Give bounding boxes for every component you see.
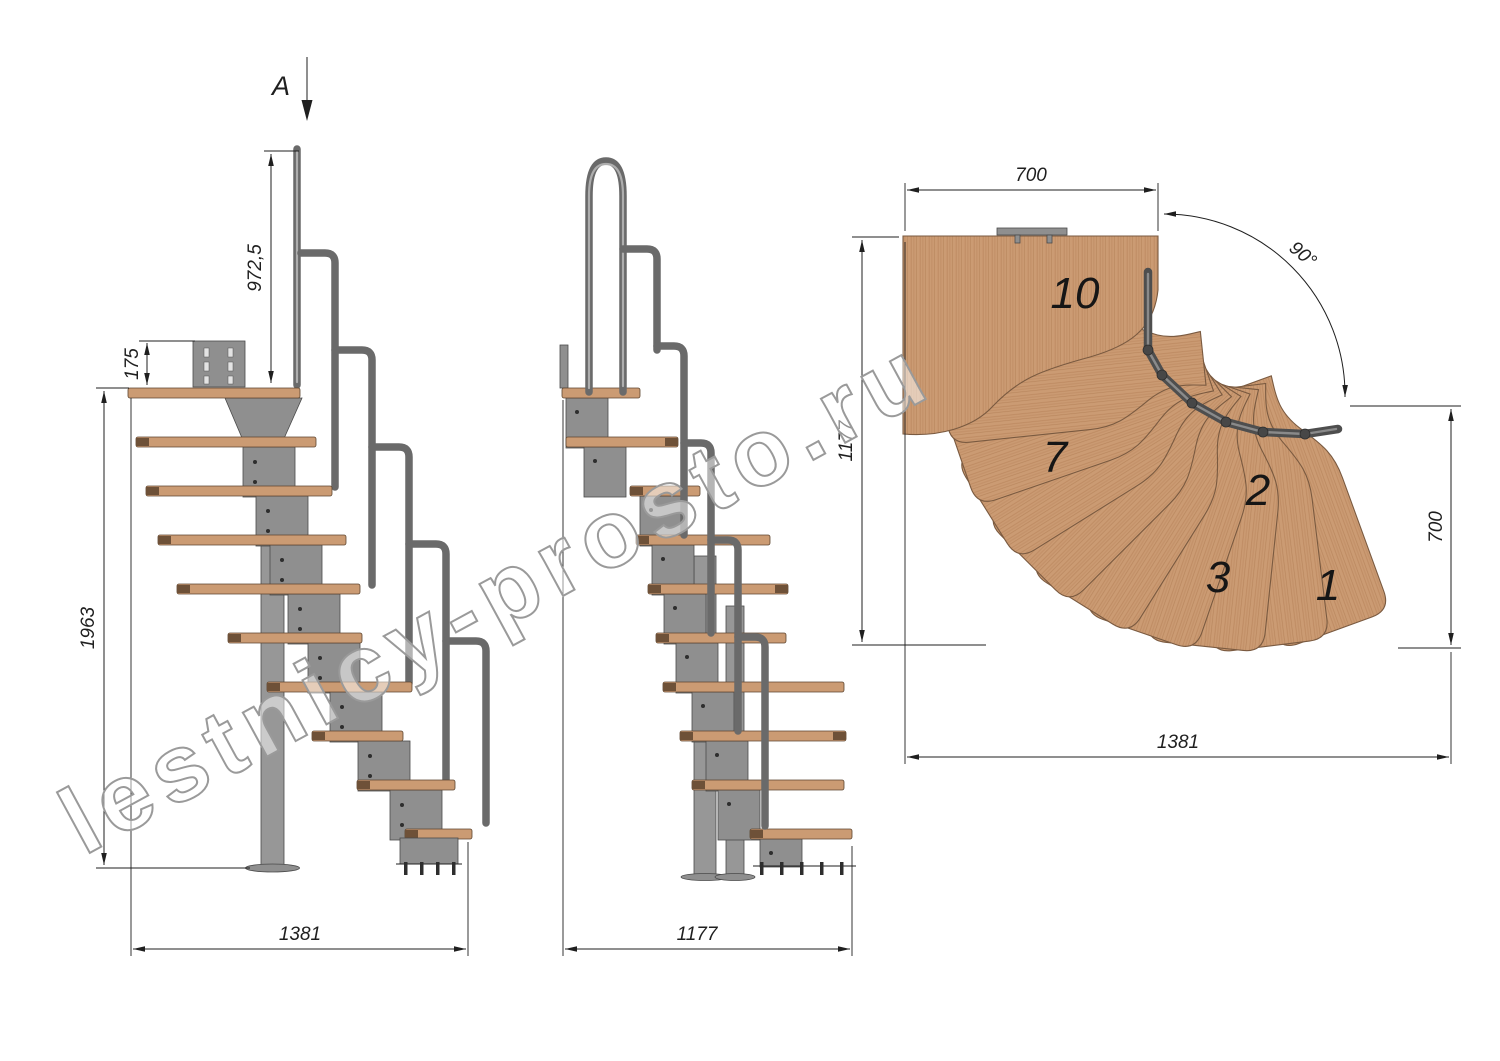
- step-number-2: 2: [1245, 466, 1270, 515]
- step-number-10: 10: [1051, 269, 1100, 318]
- plan-view: 1 2 3 7 10 700 90° 700 1177: [836, 165, 1461, 764]
- tread-end-cap: [405, 830, 418, 838]
- tread-end-cap: [228, 634, 241, 642]
- column-foot: [246, 864, 300, 872]
- dim-bracket-height: 175: [122, 341, 195, 385]
- bolt: [673, 606, 677, 610]
- bolt: [253, 480, 257, 484]
- tread-end-cap: [158, 536, 171, 544]
- bolt: [266, 509, 270, 513]
- dim-top-width: 700: [905, 165, 1158, 231]
- tread: [177, 584, 360, 594]
- handrail-joint: [1300, 429, 1310, 439]
- bolt: [253, 460, 257, 464]
- bolt: [280, 578, 284, 582]
- step-number-1: 1: [1316, 561, 1340, 610]
- floor-mounting-bracket: [396, 838, 462, 875]
- tread: [663, 682, 844, 692]
- bolt: [593, 459, 597, 463]
- staircase-drawing: A 972,5 175 1963 1381: [0, 0, 1500, 1061]
- tread-end-cap: [663, 683, 676, 691]
- wall-mounting-bracket: [193, 341, 245, 387]
- handrail-joint: [1157, 370, 1167, 380]
- bolt: [368, 754, 372, 758]
- tread: [648, 584, 788, 594]
- bolt: [575, 410, 579, 414]
- tread-end-cap: [775, 585, 788, 593]
- watermark: lestnicy-prosto.ru: [43, 321, 942, 875]
- section-label: A: [270, 71, 290, 101]
- tread-end-cap: [692, 781, 705, 789]
- dim-handrail-height: 972,5: [245, 151, 299, 383]
- bolt: [701, 704, 705, 708]
- bolt: [298, 607, 302, 611]
- dim-label: 1177: [677, 924, 719, 945]
- tread: [146, 486, 332, 496]
- tread-end-cap: [680, 732, 693, 740]
- dim-label: 1963: [78, 606, 99, 649]
- bolt: [769, 851, 773, 855]
- dim-label: 700: [1015, 165, 1047, 186]
- tread-end-cap: [750, 830, 763, 838]
- bolt: [400, 803, 404, 807]
- section-arrow: A: [270, 57, 313, 121]
- column-foot: [715, 874, 755, 881]
- tread: [750, 829, 852, 839]
- bolt: [266, 529, 270, 533]
- step-number-3: 3: [1206, 553, 1231, 602]
- section-arrow-head: [302, 100, 313, 121]
- bolt: [685, 655, 689, 659]
- tread: [136, 437, 316, 447]
- dim-label: 175: [122, 348, 143, 380]
- bolt: [280, 558, 284, 562]
- tread: [158, 535, 346, 545]
- tread: [357, 780, 455, 790]
- tread-end-cap: [833, 732, 846, 740]
- tread-end-cap: [357, 781, 370, 789]
- drawing-canvas: A 972,5 175 1963 1381: [0, 0, 1500, 1061]
- handrail-joint: [1221, 417, 1231, 427]
- dim-label: 700: [1426, 511, 1447, 543]
- dim-label: 972,5: [245, 244, 266, 292]
- tread-end-cap: [648, 585, 661, 593]
- dim-label: 90°: [1285, 238, 1321, 273]
- dim-label: 1381: [279, 924, 321, 945]
- tread: [128, 388, 300, 398]
- step-number-7: 7: [1043, 433, 1069, 482]
- handrail-joint: [1143, 345, 1153, 355]
- bolt: [368, 774, 372, 778]
- wall-bracket-edge: [560, 345, 568, 388]
- dim-label: 1381: [1157, 732, 1199, 753]
- tread-end-cap: [656, 634, 669, 642]
- tread-end-cap: [136, 438, 149, 446]
- handrail-joint: [1258, 427, 1268, 437]
- bolt: [715, 753, 719, 757]
- handrail-joint: [1187, 398, 1197, 408]
- tread-end-cap: [177, 585, 190, 593]
- tread-end-cap: [146, 487, 159, 495]
- tread: [562, 388, 640, 398]
- bolt: [298, 627, 302, 631]
- bolt: [400, 823, 404, 827]
- bolt: [318, 656, 322, 660]
- bolt: [727, 802, 731, 806]
